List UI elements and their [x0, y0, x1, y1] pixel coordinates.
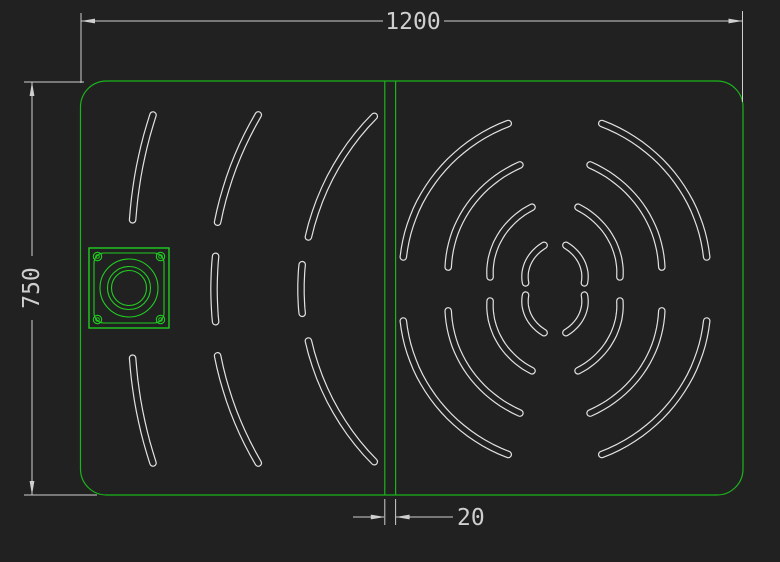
slot-arc[interactable] — [566, 295, 585, 333]
slot-arc-outline — [590, 311, 662, 413]
fixture-outer-square[interactable] — [89, 248, 169, 328]
dim-height-label[interactable]: 750 — [19, 267, 45, 309]
slot-arc-inner — [308, 116, 374, 237]
slot-arc[interactable] — [566, 245, 585, 283]
slot-arc[interactable] — [218, 356, 259, 463]
dim-gap[interactable] — [353, 499, 453, 525]
slot-arc[interactable] — [214, 256, 216, 321]
slots-layer — [133, 115, 707, 463]
dimension-arrowhead — [81, 19, 95, 24]
slot-arc[interactable] — [301, 265, 302, 314]
slot-arc-inner — [218, 356, 259, 463]
drain-fixture[interactable] — [89, 248, 169, 328]
fixture-circle[interactable] — [108, 267, 151, 310]
slot-arc-outline — [448, 311, 520, 413]
dimension-arrowhead — [30, 82, 35, 96]
slot-arc-inner — [218, 115, 259, 222]
slot-arc-outline — [308, 116, 374, 237]
dimension-arrowhead — [396, 515, 410, 520]
dim-width-label[interactable]: 1200 — [385, 9, 440, 35]
slot-arc[interactable] — [133, 358, 153, 463]
fixture-circle[interactable] — [100, 259, 158, 317]
cad-viewport[interactable]: 1200 750 20 — [0, 0, 780, 562]
fixture-rounded-square[interactable] — [94, 253, 164, 323]
slot-arc[interactable] — [308, 116, 374, 237]
slot-arc[interactable] — [525, 295, 544, 333]
fixture-bolt-hole[interactable] — [156, 252, 164, 260]
slot-arc[interactable] — [308, 341, 374, 462]
slot-arc[interactable] — [590, 165, 662, 267]
dimension-arrowhead — [729, 19, 743, 24]
fixture-bolt-hole[interactable] — [93, 315, 101, 323]
fixture-bolt-hole[interactable] — [156, 315, 164, 323]
slot-arc[interactable] — [525, 245, 544, 283]
dimension-arrowhead — [30, 481, 35, 495]
bolt-hole-circle — [93, 252, 101, 260]
bolt-hole-circle — [93, 315, 101, 323]
bolt-hole-circle — [156, 252, 164, 260]
slot-arc-outline — [448, 165, 520, 267]
dimension-arrowhead — [371, 515, 385, 520]
slot-arc-inner — [308, 341, 374, 462]
slot-arc[interactable] — [448, 311, 520, 413]
fixture-bolt-hole[interactable] — [93, 252, 101, 260]
slot-arc-outline — [590, 165, 662, 267]
slot-arc-inner — [301, 265, 302, 314]
slot-arc[interactable] — [590, 311, 662, 413]
slot-arc-inner — [214, 256, 216, 321]
slot-arc-outline — [308, 341, 374, 462]
dimension-layer — [24, 11, 743, 525]
slot-arc[interactable] — [218, 115, 259, 222]
cad-canvas[interactable]: 1200 750 20 — [0, 0, 780, 562]
dim-gap-label[interactable]: 20 — [457, 505, 485, 531]
slot-arc[interactable] — [133, 115, 153, 220]
fixture-circle[interactable] — [112, 271, 147, 306]
bolt-hole-circle — [156, 315, 164, 323]
slot-arc[interactable] — [448, 165, 520, 267]
